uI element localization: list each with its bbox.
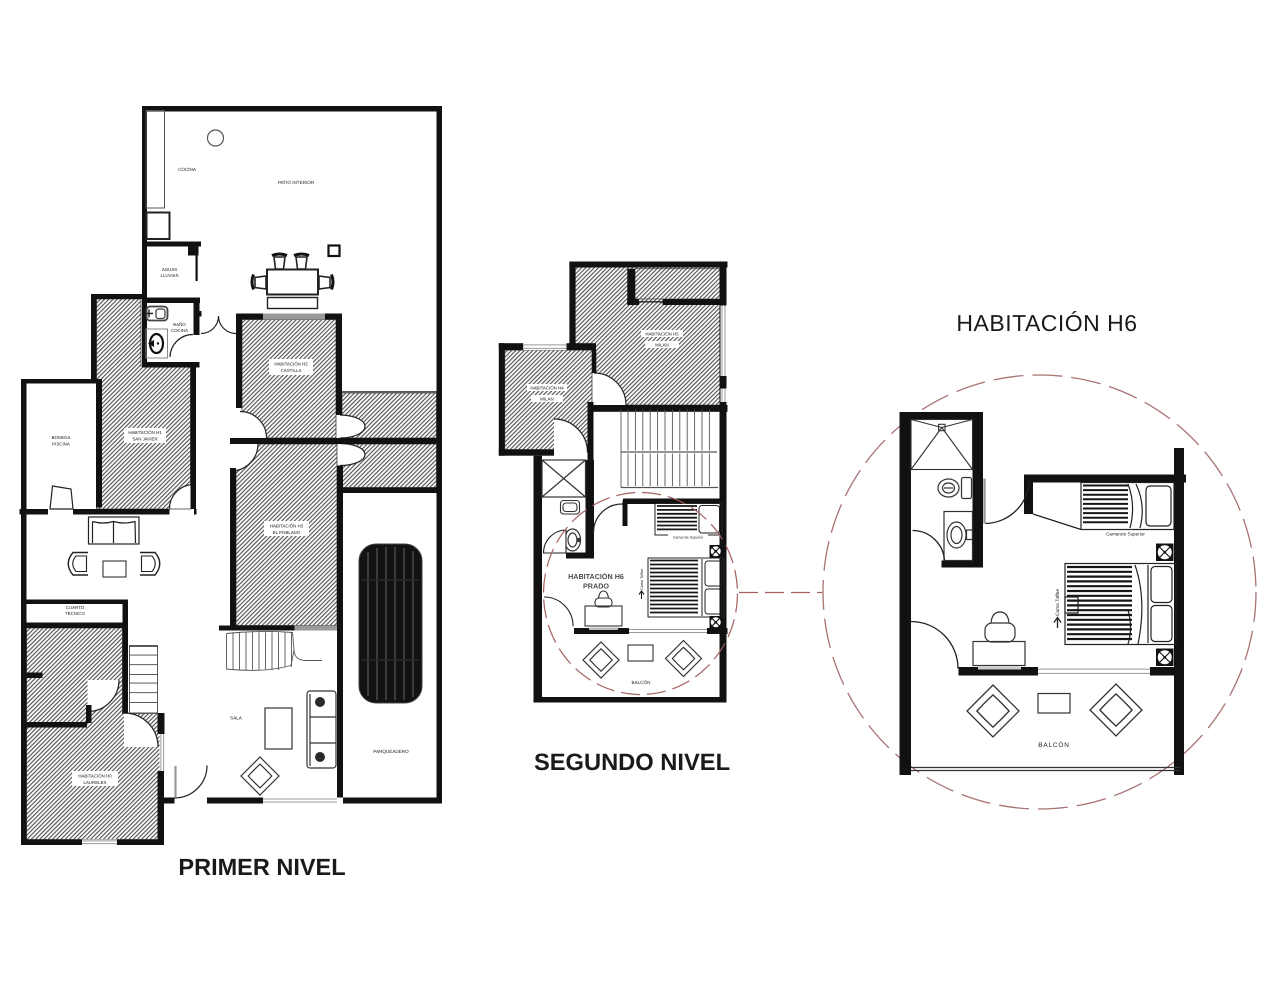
svg-text:Camarote Superior: Camarote Superior: [673, 536, 704, 540]
svg-text:BALCÓN: BALCÓN: [1038, 741, 1070, 749]
svg-text:Camarote Superior: Camarote Superior: [1106, 532, 1145, 537]
svg-text:Cama Toffee: Cama Toffee: [640, 569, 644, 590]
svg-text:AGUAS: AGUAS: [162, 267, 177, 272]
svg-text:LAURELES: LAURELES: [84, 780, 107, 785]
svg-text:HABITACIÓN H5: HABITACIÓN H5: [645, 332, 679, 337]
svg-text:HABITACIÓN H1: HABITACIÓN H1: [128, 430, 162, 435]
svg-text:COCINA: COCINA: [178, 167, 197, 172]
svg-text:PISCINA: PISCINA: [52, 442, 70, 447]
svg-text:MILAN: MILAN: [655, 343, 668, 348]
svg-text:BALCÓN: BALCÓN: [632, 680, 651, 685]
svg-text:HABITACIÓN H2: HABITACIÓN H2: [274, 362, 308, 367]
svg-text:BODEGA: BODEGA: [52, 435, 71, 440]
svg-text:PARQUEADERO: PARQUEADERO: [373, 749, 409, 754]
svg-text:HABITACIÓN H0: HABITACIÓN H0: [78, 774, 112, 779]
svg-text:SALA: SALA: [230, 716, 243, 721]
svg-text:BAÑO: BAÑO: [173, 322, 186, 327]
svg-text:CUARTO: CUARTO: [66, 605, 85, 610]
svg-text:HABITACIÓN H6: HABITACIÓN H6: [568, 572, 624, 581]
svg-text:MILAN: MILAN: [540, 397, 553, 402]
svg-text:PRIMER NIVEL: PRIMER NIVEL: [178, 854, 345, 880]
svg-text:SAN JAVIER: SAN JAVIER: [132, 437, 157, 442]
svg-text:SEGUNDO NIVEL: SEGUNDO NIVEL: [534, 750, 730, 776]
svg-text:PRADO: PRADO: [583, 582, 609, 591]
svg-text:TÉCNICO: TÉCNICO: [65, 611, 85, 616]
svg-text:COCINA: COCINA: [171, 328, 188, 333]
svg-text:HABITACIÓN H4: HABITACIÓN H4: [530, 386, 564, 391]
svg-text:LLUVIAS: LLUVIAS: [160, 273, 178, 278]
svg-text:CASTILLA: CASTILLA: [281, 368, 302, 373]
svg-text:PATIO INTERIOR: PATIO INTERIOR: [278, 180, 315, 185]
svg-text:HABITACIÓN H3: HABITACIÓN H3: [270, 524, 304, 529]
svg-text:Cama Toffee: Cama Toffee: [1055, 589, 1061, 616]
svg-text:HABITACIÓN H6: HABITACIÓN H6: [956, 310, 1137, 336]
svg-text:EL POBLADO: EL POBLADO: [273, 530, 301, 535]
